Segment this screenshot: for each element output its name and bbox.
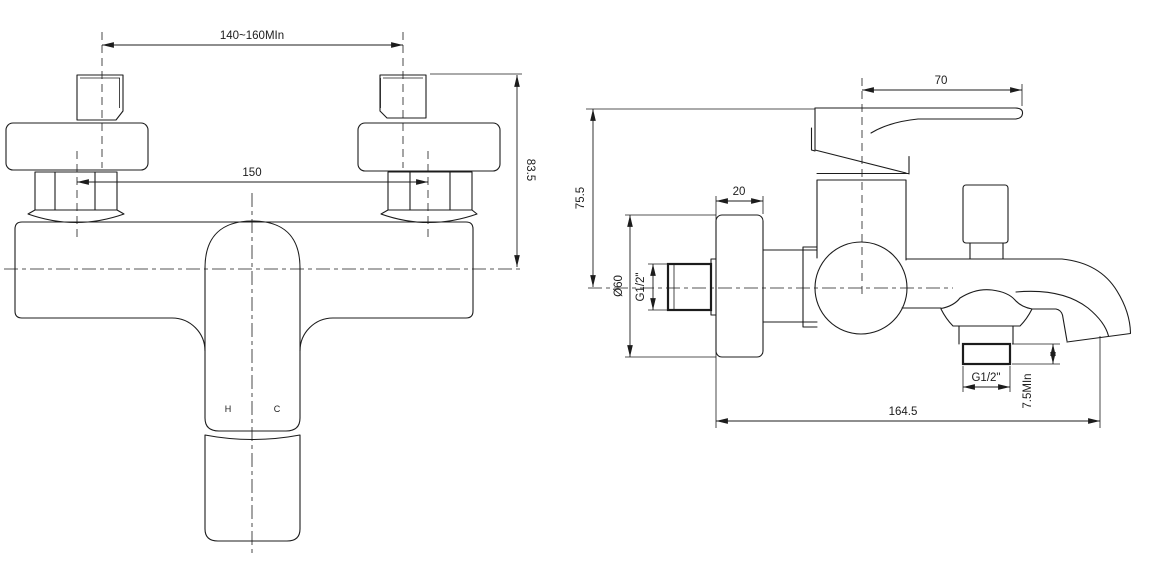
hex-nut-left-facets bbox=[55, 172, 95, 210]
shower-outlet bbox=[941, 290, 1032, 364]
body-column bbox=[817, 180, 906, 260]
handle-upper-bottom bbox=[205, 418, 300, 431]
handle-lower bbox=[205, 435, 300, 541]
mixer-drawing-svg: H C 140~160MIn 150 83.5 bbox=[0, 0, 1165, 569]
hex-nut-right-facets bbox=[410, 172, 450, 210]
skirt-right bbox=[381, 210, 477, 223]
dim-text-outlet-thread: G1/2" bbox=[971, 372, 1000, 384]
front-dimensions: 140~160MIn 150 83.5 bbox=[77, 30, 536, 267]
side-inlet bbox=[668, 215, 817, 357]
mixer-body-front bbox=[15, 221, 473, 351]
technical-drawing-canvas: H C 140~160MIn 150 83.5 bbox=[0, 0, 1165, 569]
side-body bbox=[812, 108, 1023, 334]
dim-text-wall-centers: 140~160MIn bbox=[220, 30, 284, 42]
escutcheon-left bbox=[6, 123, 148, 170]
dim-text-inlet-centers: 150 bbox=[242, 167, 261, 179]
wall-thread-right-bevel bbox=[381, 78, 424, 108]
wall-thread-left-bevel bbox=[80, 78, 120, 108]
hot-label: H bbox=[225, 404, 232, 414]
body-neck bbox=[763, 250, 817, 322]
ext-inlet-thread bbox=[648, 264, 668, 310]
spout-underside bbox=[902, 308, 1067, 341]
inlet-thread bbox=[668, 264, 711, 310]
outlet-thread bbox=[963, 344, 1010, 364]
spout-outer-curve bbox=[906, 259, 1131, 333]
dim-text-handle: 70 bbox=[935, 75, 948, 87]
escutcheon-right bbox=[358, 123, 500, 171]
body-outline bbox=[15, 222, 473, 318]
handle-upper-sides bbox=[205, 268, 300, 418]
spout-tip-cap bbox=[1067, 334, 1131, 343]
hex-nut-left bbox=[35, 172, 117, 210]
skirt-left bbox=[28, 210, 124, 223]
front-centerlines bbox=[4, 32, 521, 557]
side-view: 70 75.5 20 Ø60 G1/2" G1/2" 7.5MIn 164.5 bbox=[575, 75, 1131, 428]
dim-text-top-to-axis: 75.5 bbox=[575, 187, 587, 209]
escutcheon-side bbox=[716, 215, 763, 357]
body-fillet-right bbox=[300, 318, 333, 351]
outlet-cylinder bbox=[959, 326, 1013, 344]
knob-neck bbox=[970, 243, 1003, 259]
cold-label: C bbox=[274, 404, 281, 414]
hex-nut-right bbox=[388, 172, 472, 210]
side-centerlines bbox=[588, 78, 953, 298]
diverter-knob bbox=[963, 185, 1008, 259]
wall-thread-left bbox=[77, 75, 123, 120]
dim-text-height: 83.5 bbox=[524, 159, 536, 181]
outlet-flange bbox=[941, 309, 1032, 326]
knob-body bbox=[963, 185, 1008, 243]
dim-text-escutcheon-dia: Ø60 bbox=[613, 275, 625, 297]
lever-blade bbox=[815, 108, 1023, 133]
handle-dome bbox=[205, 221, 300, 268]
right-wall-union bbox=[358, 75, 500, 223]
front-view: H C 140~160MIn 150 83.5 bbox=[4, 30, 536, 557]
dim-text-inlet-thread: G1/2" bbox=[635, 272, 647, 301]
spout bbox=[902, 259, 1131, 342]
dim-text-outlet-len: 7.5MIn bbox=[1022, 373, 1034, 408]
dim-text-escutcheon-depth: 20 bbox=[733, 186, 746, 198]
outlet-flange-crown bbox=[941, 290, 1032, 309]
lever-left-edge bbox=[812, 108, 816, 151]
dim-text-overall: 164.5 bbox=[889, 406, 918, 418]
left-wall-union bbox=[6, 75, 148, 223]
body-fillet-left bbox=[172, 318, 205, 351]
handle-front: H C bbox=[205, 268, 300, 541]
